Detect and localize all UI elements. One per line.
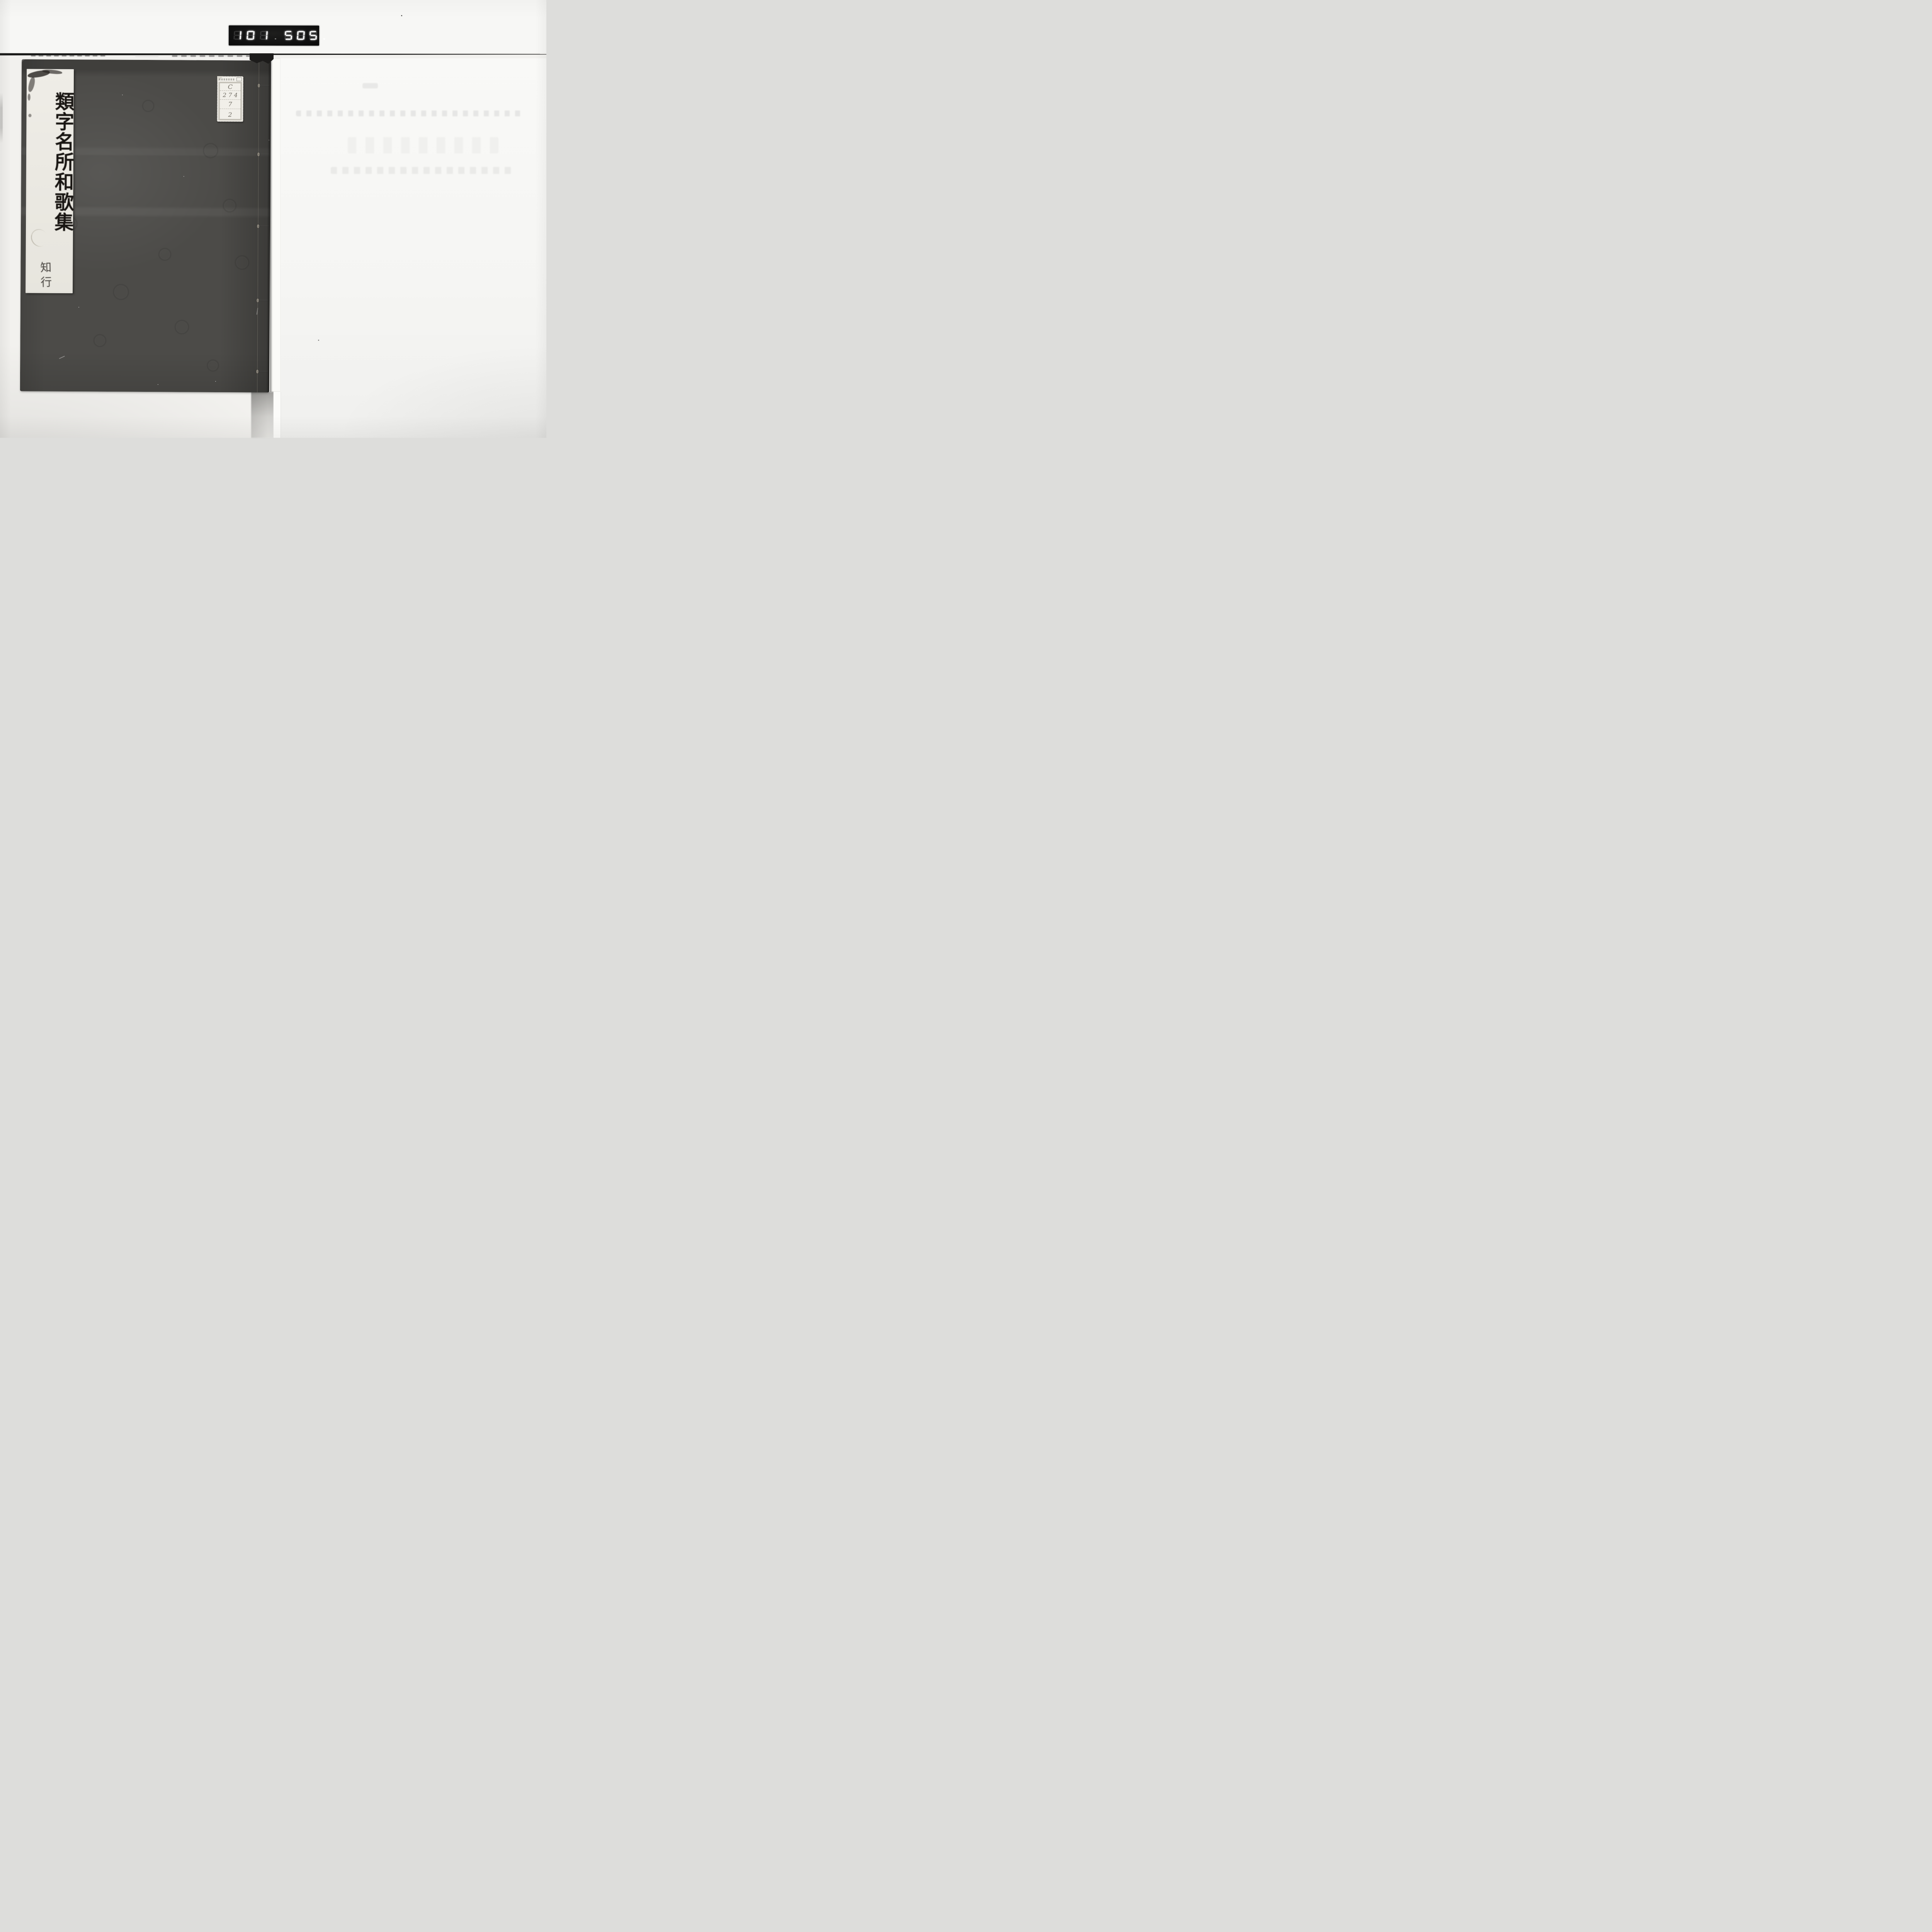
counter-digit: [297, 31, 305, 40]
segment-b: [291, 31, 293, 35]
cover-damask-motif: [235, 255, 249, 270]
scan-viewport: 類字名所和歌集 知行 C 274 7 2: [0, 0, 1932, 1548]
segment-d: [286, 39, 291, 40]
segment-c: [291, 36, 292, 39]
counter-digit: [260, 31, 268, 40]
dust-speck: [401, 15, 402, 16]
cover-damask-motif: [113, 284, 129, 300]
cover-damask-motif: [223, 199, 236, 213]
label-printed-header: [219, 77, 242, 81]
segment-a: [235, 31, 240, 32]
page-fore-edge-lower: [274, 392, 281, 438]
title-calligraphy: 類字名所和歌集: [53, 92, 73, 258]
scan-edge-streak: [0, 93, 3, 143]
segment-b: [266, 31, 268, 35]
segment-b: [316, 31, 317, 35]
frame-counter-display: [229, 26, 319, 46]
segment-b: [253, 31, 255, 35]
line-ragged-shadow: [172, 55, 251, 57]
cover-damask-motif: [207, 359, 219, 372]
segment-b: [240, 31, 241, 35]
segment-d: [298, 39, 303, 40]
segment-g: [311, 35, 316, 36]
cover-corner-wear: [22, 59, 25, 62]
call-number-row: 7: [220, 99, 241, 109]
segment-a: [286, 31, 291, 32]
counter-digit: [284, 31, 293, 40]
book-cover: 類字名所和歌集 知行 C 274 7 2: [20, 59, 271, 392]
bleed-through-smudge: [362, 83, 378, 88]
segment-d: [310, 39, 315, 40]
call-number-label: C 274 7 2: [217, 76, 243, 122]
decimal-dot: [275, 38, 276, 40]
backing-sheet: [270, 58, 546, 438]
frame-counter-left-digits: [234, 31, 276, 40]
segment-d: [248, 39, 253, 40]
segment-d: [235, 39, 240, 40]
paper-speck: [318, 340, 319, 341]
call-number-row: 274: [220, 90, 241, 100]
cover-damask-motif: [175, 320, 189, 334]
counter-digit: [309, 31, 317, 40]
dust-speck: [158, 384, 158, 385]
volume-inscription: 知行: [39, 261, 51, 292]
segment-a: [262, 31, 267, 32]
line-ragged-shadow: [31, 55, 106, 56]
dust-speck: [122, 95, 123, 95]
counter-digit: [247, 31, 255, 40]
illegible-print-smudge: [219, 78, 235, 80]
faded-stain: [28, 226, 51, 250]
dust-speck: [184, 176, 184, 177]
cover-damask-motif: [203, 143, 218, 158]
segment-c: [315, 36, 317, 39]
segment-b: [303, 31, 305, 35]
segment-c: [303, 36, 304, 39]
segment-g: [298, 35, 303, 36]
counter-digit: [233, 31, 241, 40]
text-block-shadow: [251, 392, 274, 438]
ink-stain: [28, 94, 31, 100]
call-number-row: C: [220, 83, 241, 90]
dust-speck: [78, 307, 79, 308]
cover-damask-pattern: [22, 59, 271, 60]
cover-damask-motif: [142, 100, 155, 112]
call-number-grid: C 274 7 2: [218, 82, 242, 120]
page-fore-edge: [270, 58, 281, 392]
segment-a: [311, 31, 316, 32]
cover-scratch: [59, 356, 65, 359]
dust-speck: [215, 381, 216, 382]
segment-a: [248, 31, 253, 32]
segment-d: [261, 39, 266, 40]
segment-g: [261, 35, 266, 36]
segment-a: [299, 31, 304, 32]
segment-g: [235, 35, 240, 36]
ink-stain: [27, 76, 36, 92]
segment-c: [266, 36, 267, 39]
segment-c: [240, 36, 241, 39]
scanned-photograph: 類字名所和歌集 知行 C 274 7 2: [0, 0, 546, 438]
segment-c: [253, 36, 254, 39]
bleed-through-smudge: [331, 167, 515, 174]
call-number-row: 2: [219, 109, 240, 119]
bleed-through-smudge: [296, 111, 526, 116]
ink-stain: [28, 114, 31, 117]
cover-damask-motif: [158, 248, 172, 261]
title-slip: 類字名所和歌集 知行: [26, 69, 74, 293]
cover-damask-motif: [93, 334, 106, 347]
bleed-through-smudge: [348, 137, 498, 153]
line-ragged-shadow: [135, 56, 158, 57]
segment-g: [248, 35, 253, 36]
frame-counter-right-digits: [285, 31, 325, 40]
decimal-dot: [323, 38, 325, 40]
label-header-box: [236, 77, 242, 81]
segment-g: [286, 35, 291, 36]
